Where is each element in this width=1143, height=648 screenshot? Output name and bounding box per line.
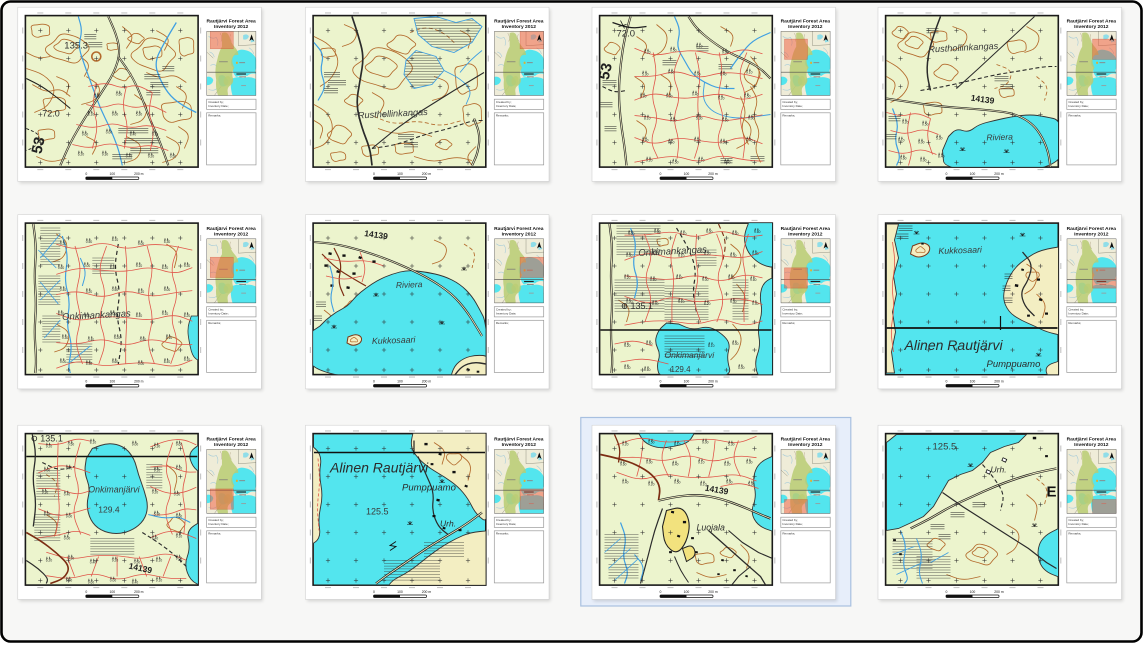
svg-text:5.30: 5.30 (86, 362, 93, 366)
svg-text:8.40: 8.40 (110, 266, 117, 270)
svg-text:8.40: 8.40 (642, 139, 649, 143)
svg-text:5.30: 5.30 (642, 73, 649, 77)
svg-text:9.00: 9.00 (702, 278, 709, 282)
svg-text:0.50: 0.50 (112, 288, 119, 292)
svg-text:200 m: 200 m (134, 172, 144, 176)
svg-text:Pumppuamo: Pumppuamo (987, 359, 1041, 370)
svg-text:5.30: 5.30 (136, 113, 143, 117)
svg-text:8.10: 8.10 (138, 290, 145, 294)
svg-text:9.00: 9.00 (66, 515, 73, 519)
svg-text:5.30: 5.30 (164, 240, 171, 244)
svg-text:Inventory 2012: Inventory 2012 (1074, 442, 1109, 448)
svg-text:8.10: 8.10 (166, 336, 173, 340)
svg-text:125.5: 125.5 (933, 442, 957, 453)
svg-text:Inventory Date;: Inventory Date; (496, 104, 517, 108)
svg-text:Inventory Date;: Inventory Date; (208, 522, 229, 526)
svg-text:Inventory 2012: Inventory 2012 (502, 442, 537, 448)
svg-text:0.40: 0.40 (692, 93, 699, 97)
svg-text:9.00: 9.00 (60, 360, 67, 364)
svg-text:8.10: 8.10 (88, 113, 95, 117)
svg-text:200 m: 200 m (708, 590, 718, 594)
svg-text:8.40: 8.40 (938, 155, 945, 159)
svg-text:6.20: 6.20 (704, 302, 711, 306)
svg-text:9.10: 9.10 (162, 312, 169, 316)
svg-text:200 m: 200 m (708, 380, 718, 384)
svg-text:0: 0 (660, 380, 662, 384)
svg-text:9.60: 9.60 (58, 266, 65, 270)
svg-text:5.30: 5.30 (728, 276, 735, 280)
svg-text:8.10: 8.10 (898, 139, 905, 143)
svg-text:9.20: 9.20 (114, 336, 121, 340)
svg-text:9.00: 9.00 (702, 441, 709, 445)
svg-text:6.20: 6.20 (46, 559, 53, 563)
svg-text:135.3: 135.3 (64, 41, 88, 52)
svg-text:8.10: 8.10 (156, 559, 163, 563)
svg-text:Alinen Rautjärvi: Alinen Rautjärvi (329, 460, 429, 476)
svg-text:0.00: 0.00 (106, 131, 113, 135)
svg-text:100: 100 (397, 172, 403, 176)
svg-text:Inventory Date;: Inventory Date; (208, 104, 229, 108)
svg-text:0.00: 0.00 (646, 461, 653, 465)
svg-text:200 m: 200 m (422, 590, 432, 594)
svg-text:9.60: 9.60 (176, 443, 183, 447)
svg-text:8.10: 8.10 (696, 45, 703, 49)
svg-text:8.40: 8.40 (672, 463, 679, 467)
svg-text:9.30: 9.30 (42, 491, 49, 495)
svg-text:100: 100 (109, 380, 115, 384)
svg-text:9.00: 9.00 (176, 557, 183, 561)
svg-text:0.40: 0.40 (64, 493, 71, 497)
svg-text:9.60: 9.60 (668, 71, 675, 75)
svg-text:200 m: 200 m (134, 590, 144, 594)
svg-text:0.40: 0.40 (126, 155, 133, 159)
svg-text:9.30: 9.30 (102, 153, 109, 157)
svg-text:Kukkosaari: Kukkosaari (938, 244, 983, 256)
svg-text:9.60: 9.60 (722, 119, 729, 123)
svg-text:9.60: 9.60 (112, 360, 119, 364)
svg-text:0: 0 (946, 172, 948, 176)
svg-text:0.50: 0.50 (744, 95, 751, 99)
svg-text:Onkimanjärvi: Onkimanjärvi (665, 350, 716, 360)
svg-text:Rautjärvi Forest Area: Rautjärvi Forest Area (781, 226, 831, 232)
svg-text:Onkimanjärvi: Onkimanjärvi (88, 485, 140, 495)
svg-text:0: 0 (660, 172, 662, 176)
svg-text:8.40: 8.40 (130, 133, 137, 137)
svg-text:9.60: 9.60 (88, 581, 95, 585)
svg-text:8.10: 8.10 (680, 232, 687, 236)
svg-text:Riviera: Riviera (986, 132, 1013, 143)
svg-text:9.10: 9.10 (184, 358, 191, 362)
svg-text:72.0: 72.0 (42, 109, 60, 119)
svg-text:100: 100 (970, 590, 976, 594)
svg-text:9.60: 9.60 (750, 278, 757, 282)
svg-text:Remarks;: Remarks; (782, 532, 795, 536)
svg-text:8.40: 8.40 (66, 467, 73, 471)
svg-text:0.50: 0.50 (170, 155, 177, 159)
svg-text:9.60: 9.60 (644, 368, 651, 372)
svg-text:0.40: 0.40 (88, 338, 95, 342)
svg-text:8.10: 8.10 (112, 238, 119, 242)
svg-text:Inventory 2012: Inventory 2012 (502, 231, 537, 237)
svg-text:0.50: 0.50 (86, 240, 93, 244)
svg-text:9.30: 9.30 (666, 95, 673, 99)
svg-text:100: 100 (970, 172, 976, 176)
svg-text:0.00: 0.00 (138, 362, 145, 366)
svg-text:Remarks;: Remarks; (208, 321, 221, 325)
svg-text:9.20: 9.20 (624, 344, 631, 348)
svg-text:9.30: 9.30 (730, 254, 737, 258)
svg-text:Inventory 2012: Inventory 2012 (214, 442, 249, 448)
svg-text:8.40: 8.40 (720, 73, 727, 77)
svg-text:6.20: 6.20 (184, 314, 191, 318)
svg-text:0.50: 0.50 (140, 338, 147, 342)
svg-text:0.50: 0.50 (174, 493, 181, 497)
svg-text:0: 0 (85, 172, 87, 176)
svg-text:9.00: 9.00 (164, 288, 171, 292)
svg-text:Remarks;: Remarks; (496, 114, 509, 118)
svg-text:8.10: 8.10 (644, 117, 651, 121)
svg-text:0.50: 0.50 (648, 441, 655, 445)
svg-text:Inventory Date;: Inventory Date; (782, 104, 803, 108)
svg-text:9.20: 9.20 (644, 51, 651, 55)
svg-text:Rautjärvi Forest Area: Rautjärvi Forest Area (1067, 436, 1117, 442)
svg-text:9.10: 9.10 (136, 264, 143, 268)
svg-text:129.4: 129.4 (98, 505, 120, 515)
svg-text:9.30: 9.30 (184, 264, 191, 268)
svg-text:0.50: 0.50 (116, 93, 123, 97)
svg-text:9.20: 9.20 (112, 559, 119, 563)
svg-text:Urh.: Urh. (440, 519, 456, 529)
svg-text:6.20: 6.20 (694, 139, 701, 143)
svg-text:Rautjärvi Forest Area: Rautjärvi Forest Area (206, 436, 256, 442)
svg-text:9.60: 9.60 (82, 133, 89, 137)
svg-text:200 m: 200 m (134, 380, 144, 384)
svg-text:0.00: 0.00 (110, 579, 117, 583)
svg-text:0: 0 (946, 590, 948, 594)
svg-text:Inventory 2012: Inventory 2012 (1074, 231, 1109, 237)
svg-text:Inventory Date;: Inventory Date; (496, 311, 517, 315)
svg-text:100: 100 (684, 590, 690, 594)
svg-text:Inventory Date;: Inventory Date; (208, 311, 229, 315)
svg-text:9.00: 9.00 (732, 342, 739, 346)
svg-text:6.20: 6.20 (162, 266, 169, 270)
svg-text:135.1: 135.1 (40, 434, 63, 444)
svg-text:9.20: 9.20 (148, 155, 155, 159)
svg-text:0.50: 0.50 (646, 342, 653, 346)
svg-text:200 m: 200 m (708, 172, 718, 176)
svg-text:9.20: 9.20 (902, 121, 909, 125)
svg-text:9.00: 9.00 (670, 119, 677, 123)
svg-text:0.40: 0.40 (90, 561, 97, 565)
svg-text:Rautjärvi Forest Area: Rautjärvi Forest Area (494, 18, 544, 24)
svg-text:100: 100 (397, 590, 403, 594)
svg-text:0.00: 0.00 (84, 264, 91, 268)
svg-text:0: 0 (373, 380, 375, 384)
svg-text:9.20: 9.20 (94, 95, 101, 99)
svg-text:9.20: 9.20 (86, 290, 93, 294)
svg-text:Alinen Rautjärvi: Alinen Rautjärvi (904, 337, 1004, 353)
svg-text:0.40: 0.40 (622, 481, 629, 485)
svg-text:9.20: 9.20 (622, 443, 629, 447)
svg-text:5.30: 5.30 (732, 232, 739, 236)
svg-text:9.00: 9.00 (706, 230, 713, 234)
svg-text:9.20: 9.20 (152, 491, 159, 495)
svg-text:Remarks;: Remarks; (208, 532, 221, 536)
svg-text:Kukkosaari: Kukkosaari (372, 334, 417, 346)
svg-text:9.20: 9.20 (624, 276, 631, 280)
svg-text:Inventory Date;: Inventory Date; (496, 522, 517, 526)
svg-text:200 m: 200 m (422, 172, 432, 176)
svg-text:8.10: 8.10 (698, 159, 705, 163)
svg-text:9.00: 9.00 (132, 443, 139, 447)
svg-text:5.30: 5.30 (624, 366, 631, 370)
svg-text:Inventory Date;: Inventory Date; (782, 311, 803, 315)
svg-text:6.20: 6.20 (724, 463, 731, 467)
svg-text:Inventory 2012: Inventory 2012 (1074, 24, 1109, 30)
svg-text:9.10: 9.10 (154, 469, 161, 473)
svg-text:Remarks;: Remarks; (782, 114, 795, 118)
svg-text:8.40: 8.40 (152, 537, 159, 541)
svg-text:Inventory Date;: Inventory Date; (1068, 522, 1089, 526)
svg-text:125.5: 125.5 (366, 507, 389, 517)
svg-text:100: 100 (684, 380, 690, 384)
svg-text:0: 0 (373, 590, 375, 594)
svg-text:9.30: 9.30 (746, 461, 753, 465)
svg-text:5.30: 5.30 (696, 117, 703, 121)
svg-text:0.40: 0.40 (60, 288, 67, 292)
svg-text:Inventory Date;: Inventory Date; (1068, 104, 1089, 108)
svg-text:Inventory Date;: Inventory Date; (782, 522, 803, 526)
svg-text:5.30: 5.30 (154, 445, 161, 449)
svg-text:8.40: 8.40 (164, 360, 171, 364)
svg-text:Remarks;: Remarks; (782, 321, 795, 325)
svg-text:Rautjärvi Forest Area: Rautjärvi Forest Area (781, 18, 831, 24)
svg-text:Remarks;: Remarks; (1068, 321, 1081, 325)
svg-text:72.0: 72.0 (617, 29, 636, 40)
svg-text:8.10: 8.10 (708, 344, 715, 348)
svg-text:Urh.: Urh. (991, 465, 1007, 475)
svg-text:0: 0 (85, 380, 87, 384)
svg-text:8.10: 8.10 (44, 513, 51, 517)
svg-text:5.30: 5.30 (936, 137, 943, 141)
svg-text:Remarks;: Remarks; (208, 114, 221, 118)
svg-text:9.10: 9.10 (152, 133, 159, 137)
svg-text:Inventory 2012: Inventory 2012 (214, 24, 249, 30)
svg-text:9.10: 9.10 (176, 535, 183, 539)
svg-text:Inventory 2012: Inventory 2012 (214, 231, 249, 237)
svg-text:E: E (1047, 484, 1057, 501)
svg-text:8.40: 8.40 (136, 314, 143, 318)
svg-text:6.20: 6.20 (78, 153, 85, 157)
svg-text:0.50: 0.50 (654, 230, 661, 234)
svg-text:Inventory 2012: Inventory 2012 (788, 442, 823, 448)
svg-text:8.10: 8.10 (90, 441, 97, 445)
svg-text:0.40: 0.40 (752, 252, 759, 256)
svg-text:Inventory 2012: Inventory 2012 (788, 24, 823, 30)
svg-text:100: 100 (684, 172, 690, 176)
svg-text:9.20: 9.20 (718, 97, 725, 101)
svg-text:Rautjärvi Forest Area: Rautjärvi Forest Area (1067, 18, 1117, 24)
svg-text:5.30: 5.30 (154, 513, 161, 517)
svg-text:Rautjärvi Forest Area: Rautjärvi Forest Area (781, 436, 831, 442)
svg-text:9.00: 9.00 (722, 51, 729, 55)
svg-text:0.50: 0.50 (670, 49, 677, 53)
svg-text:Rautjärvi Forest Area: Rautjärvi Forest Area (1067, 226, 1117, 232)
svg-text:200 m: 200 m (422, 380, 432, 384)
svg-text:Riviera: Riviera (396, 279, 423, 290)
svg-text:0.50: 0.50 (922, 123, 929, 127)
svg-text:0.40: 0.40 (752, 302, 759, 306)
svg-text:9.20: 9.20 (646, 159, 653, 163)
svg-text:0.50: 0.50 (672, 161, 679, 165)
svg-text:0.00: 0.00 (920, 159, 927, 163)
svg-text:9.00: 9.00 (138, 242, 145, 246)
svg-text:0.00: 0.00 (626, 254, 633, 258)
svg-text:Inventory 2012: Inventory 2012 (502, 24, 537, 30)
svg-text:0: 0 (85, 590, 87, 594)
svg-text:0.00: 0.00 (748, 117, 755, 121)
svg-text:Rautjärvi Forest Area: Rautjärvi Forest Area (494, 226, 544, 232)
svg-text:9.60: 9.60 (900, 157, 907, 161)
svg-text:Rautjärvi Forest Area: Rautjärvi Forest Area (206, 226, 256, 232)
svg-text:9.20: 9.20 (628, 232, 635, 236)
svg-text:5.30: 5.30 (748, 483, 755, 487)
svg-text:9.20: 9.20 (648, 483, 655, 487)
svg-text:0: 0 (660, 590, 662, 594)
svg-text:0.50: 0.50 (68, 443, 75, 447)
svg-text:0.40: 0.40 (746, 139, 753, 143)
svg-text:Remarks;: Remarks; (496, 532, 509, 536)
svg-text:5.30: 5.30 (728, 443, 735, 447)
svg-text:0.00: 0.00 (44, 469, 51, 473)
svg-text:9.60: 9.60 (176, 515, 183, 519)
svg-text:0.00: 0.00 (738, 366, 745, 370)
svg-text:100: 100 (109, 172, 115, 176)
svg-text:129.4: 129.4 (671, 365, 692, 374)
svg-text:6.20: 6.20 (176, 467, 183, 471)
svg-text:9.20: 9.20 (46, 445, 53, 449)
svg-text:9.20: 9.20 (60, 242, 67, 246)
svg-text:0.50: 0.50 (650, 278, 657, 282)
svg-text:9.60: 9.60 (754, 230, 761, 234)
svg-text:0.00: 0.00 (64, 537, 71, 541)
svg-text:9.30: 9.30 (62, 336, 69, 340)
svg-text:9.10: 9.10 (746, 71, 753, 75)
svg-text:Remarks;: Remarks; (1068, 532, 1081, 536)
svg-text:200 m: 200 m (994, 380, 1004, 384)
svg-text:9.10: 9.10 (698, 461, 705, 465)
svg-text:8.10: 8.10 (674, 443, 681, 447)
svg-text:9.30: 9.30 (68, 557, 75, 561)
svg-text:9.10: 9.10 (156, 579, 163, 583)
svg-text:Pumppuamo: Pumppuamo (402, 483, 456, 494)
svg-text:100: 100 (109, 590, 115, 594)
svg-text:9.30: 9.30 (730, 300, 737, 304)
svg-text:100: 100 (397, 380, 403, 384)
svg-text:Inventory Date;: Inventory Date; (1068, 311, 1089, 315)
svg-text:8.10: 8.10 (676, 276, 683, 280)
svg-text:Remarks;: Remarks; (496, 321, 509, 325)
svg-text:200 m: 200 m (994, 590, 1004, 594)
svg-text:9.00: 9.00 (112, 113, 119, 117)
svg-text:0: 0 (373, 172, 375, 176)
svg-text:9.00: 9.00 (918, 141, 925, 145)
svg-text:135.1: 135.1 (631, 301, 654, 311)
svg-text:Inventory 2012: Inventory 2012 (788, 231, 823, 237)
svg-text:53: 53 (29, 135, 49, 155)
svg-text:6.20: 6.20 (640, 95, 647, 99)
svg-text:9.00: 9.00 (726, 481, 733, 485)
svg-text:0.50: 0.50 (674, 481, 681, 485)
svg-text:8.40: 8.40 (132, 581, 139, 585)
svg-text:9.60: 9.60 (620, 463, 627, 467)
svg-text:9.10: 9.10 (678, 300, 685, 304)
svg-text:0: 0 (946, 380, 948, 384)
svg-text:200 m: 200 m (994, 172, 1004, 176)
svg-text:0.00: 0.00 (694, 73, 701, 77)
svg-text:100: 100 (970, 380, 976, 384)
svg-text:Rautjärvi Forest Area: Rautjärvi Forest Area (494, 436, 544, 442)
svg-text:Remarks;: Remarks; (1068, 114, 1081, 118)
svg-text:Luojala: Luojala (697, 523, 725, 533)
svg-text:Rautjärvi Forest Area: Rautjärvi Forest Area (206, 18, 256, 24)
